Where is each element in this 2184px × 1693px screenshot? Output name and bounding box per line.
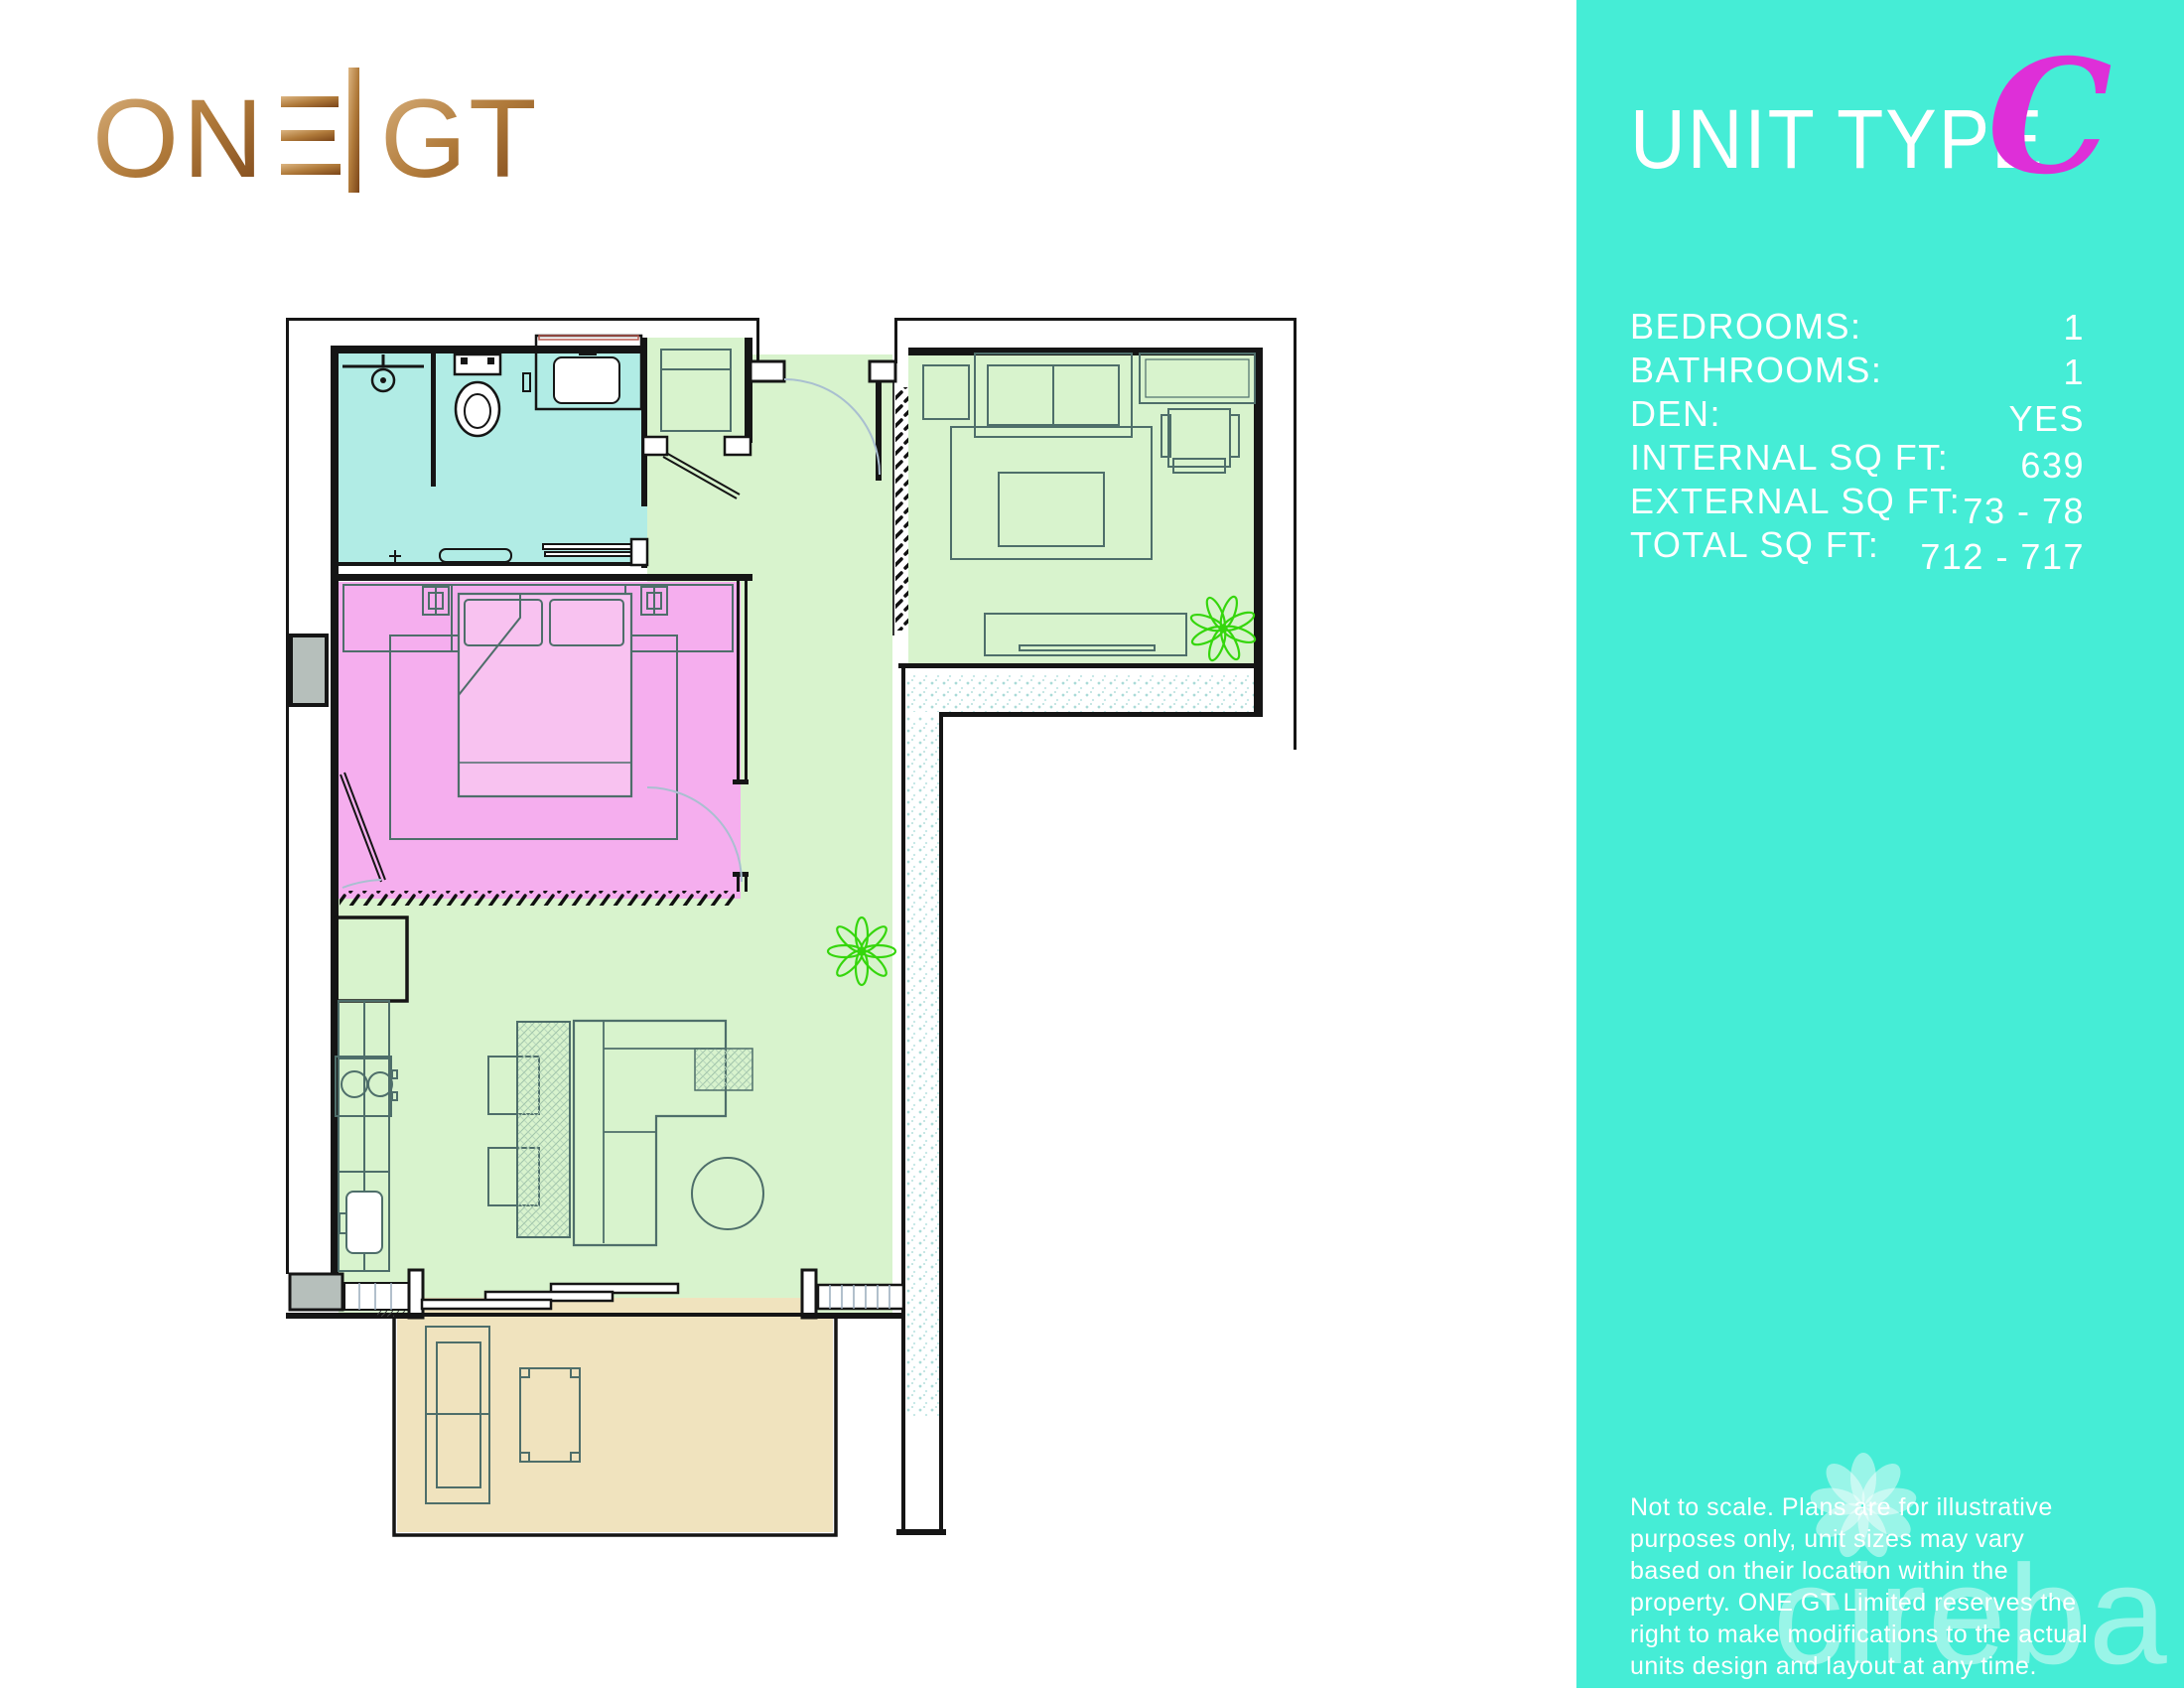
- spec-row-den: DEN: YES: [1630, 393, 2085, 437]
- spec-value: 73 - 78: [1963, 491, 2085, 532]
- unit-type-letter: C: [1987, 40, 2113, 197]
- spec-value: YES: [2008, 398, 2085, 440]
- spec-row-bathrooms: BATHROOMS: 1: [1630, 350, 2085, 393]
- spec-label: BEDROOMS:: [1630, 306, 1862, 348]
- wall-block: [290, 1274, 342, 1310]
- spec-value: 639: [2020, 445, 2085, 487]
- info-panel: UNIT TYPE C BEDROOMS: 1 BATHROOMS: 1 DEN…: [1576, 0, 2184, 1688]
- dining-table: [517, 1022, 570, 1237]
- unit-type-title: UNIT TYPE: [1630, 91, 2044, 188]
- den-accordion-partition: [895, 387, 908, 631]
- spec-row-bedrooms: BEDROOMS: 1: [1630, 306, 2085, 350]
- speckled-wall: [905, 673, 1254, 1417]
- vent-grille: [344, 1283, 410, 1310]
- spec-label: BATHROOMS:: [1630, 350, 1882, 391]
- unit-specs: BEDROOMS: 1 BATHROOMS: 1 DEN: YES INTERN…: [1630, 306, 2085, 568]
- spec-row-internal-sqft: INTERNAL SQ FT: 639: [1630, 437, 2085, 481]
- sink-icon: [340, 1192, 382, 1253]
- spec-label: DEN:: [1630, 393, 1721, 435]
- floor-plan: [0, 0, 1576, 1693]
- spec-value: 712 - 717: [1920, 536, 2085, 578]
- spec-label: INTERNAL SQ FT:: [1630, 437, 1949, 479]
- exterior-column: [291, 635, 327, 705]
- spec-value: 1: [2063, 352, 2085, 393]
- room-fills: [339, 338, 1254, 1532]
- sofa-cushion: [695, 1049, 752, 1090]
- bed-icon: [459, 594, 631, 796]
- disclaimer-text: Not to scale. Plans are for illustrative…: [1630, 1491, 2099, 1682]
- bedroom-accordion-partition: [340, 891, 735, 906]
- window-band: [818, 1285, 903, 1309]
- spec-row-external-sqft: EXTERNAL SQ FT: 73 - 78: [1630, 481, 2085, 524]
- spec-label: EXTERNAL SQ FT:: [1630, 481, 1961, 522]
- spec-label: TOTAL SQ FT:: [1630, 524, 1879, 566]
- floor-plan-drawing: [0, 0, 1576, 1688]
- spec-value: 1: [2063, 307, 2085, 349]
